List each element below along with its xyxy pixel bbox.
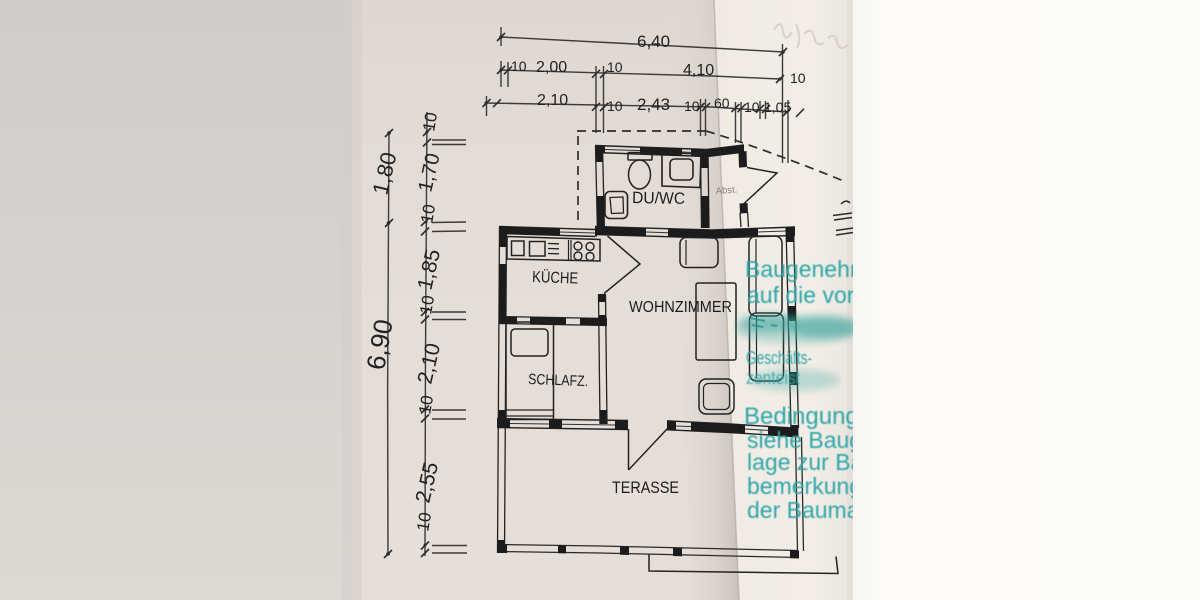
svg-text:Geschäfts-: Geschäfts- [746, 348, 812, 368]
svg-text:6,40: 6,40 [637, 32, 670, 51]
svg-text:KÜCHE: KÜCHE [532, 268, 579, 288]
svg-text:10: 10 [511, 58, 527, 74]
svg-text:10: 10 [790, 70, 806, 86]
svg-text:SCHLAFZ.: SCHLAFZ. [528, 371, 589, 390]
svg-text:Baugenehm: Baugenehm [745, 256, 869, 282]
svg-text:zenteist: zenteist [746, 368, 800, 388]
svg-text:10: 10 [417, 203, 439, 225]
svg-text:DU/WC: DU/WC [632, 189, 685, 208]
svg-text:2,10: 2,10 [537, 92, 568, 109]
svg-text:TERASSE: TERASSE [612, 479, 679, 497]
svg-text:10: 10 [684, 98, 700, 114]
svg-text:lage zur Ba: lage zur Ba [747, 449, 864, 475]
svg-text:WOHNZIMMER: WOHNZIMMER [629, 299, 732, 316]
svg-text:10: 10 [413, 511, 435, 533]
svg-text:auf die vor: auf die vor [747, 282, 855, 308]
svg-text:10: 10 [419, 111, 441, 133]
svg-text:10: 10 [415, 394, 437, 416]
svg-text:1,05: 1,05 [764, 99, 791, 115]
svg-text:60: 60 [714, 95, 730, 111]
svg-text:10: 10 [416, 294, 438, 316]
svg-text:10: 10 [607, 59, 623, 75]
svg-text:2,43: 2,43 [637, 95, 670, 114]
svg-text:Abst.: Abst. [715, 185, 737, 197]
svg-text:10: 10 [744, 99, 760, 115]
svg-text:bemerkung: bemerkung [747, 473, 862, 499]
svg-text:10: 10 [607, 98, 623, 114]
svg-text:der Bauma: der Bauma [747, 497, 860, 523]
svg-text:Bedingung: Bedingung [744, 403, 859, 430]
svg-text:2,00: 2,00 [536, 59, 567, 76]
svg-text:4,10: 4,10 [683, 62, 714, 79]
